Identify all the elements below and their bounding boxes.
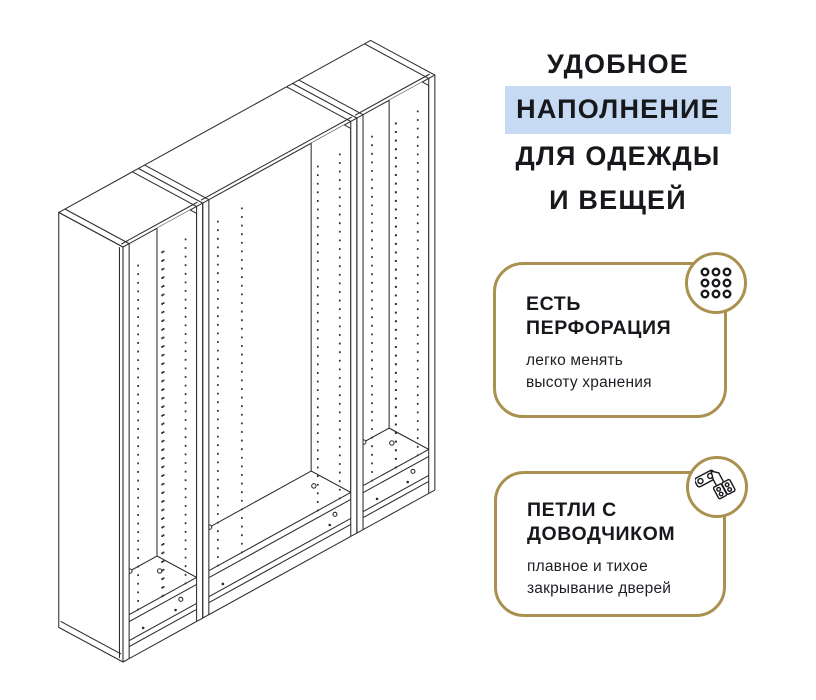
perforation-icon [685,252,747,314]
feature-description: легко менять высоту хранения [526,350,724,394]
heading: УДОБНОЕ НАПОЛНЕНИЕ ДЛЯ ОДЕЖДЫ И ВЕЩЕЙ [472,42,764,222]
feature-description-line: легко менять [526,350,724,372]
hinge-icon [686,456,748,518]
hinge-drawing [695,465,739,509]
perforation-dots [696,263,736,303]
feature-description-line: высоту хранения [526,372,724,394]
heading-text: ДЛЯ ОДЕЖДЫ [515,141,720,171]
heading-line-3: ДЛЯ ОДЕЖДЫ [472,134,764,178]
heading-text: УДОБНОЕ [547,49,689,79]
heading-line-4: И ВЕЩЕЙ [472,178,764,222]
poster-canvas: УДОБНОЕ НАПОЛНЕНИЕ ДЛЯ ОДЕЖДЫ И ВЕЩЕЙ ЕС… [0,0,816,700]
heading-highlight: НАПОЛНЕНИЕ [505,86,731,134]
feature-description-line: плавное и тихое [527,556,723,578]
feature-description-line: закрывание дверей [527,578,723,600]
wardrobe-frame-drawing [0,0,480,700]
feature-title-line: ПЕРФОРАЦИЯ [526,316,724,340]
heading-line-2: НАПОЛНЕНИЕ [472,86,764,134]
heading-line-1: УДОБНОЕ [472,42,764,86]
heading-text: И ВЕЩЕЙ [549,185,687,215]
feature-description: плавное и тихое закрывание дверей [527,556,723,600]
wardrobe-illustration [0,0,480,700]
feature-title-line: ДОВОДЧИКОМ [527,522,723,546]
